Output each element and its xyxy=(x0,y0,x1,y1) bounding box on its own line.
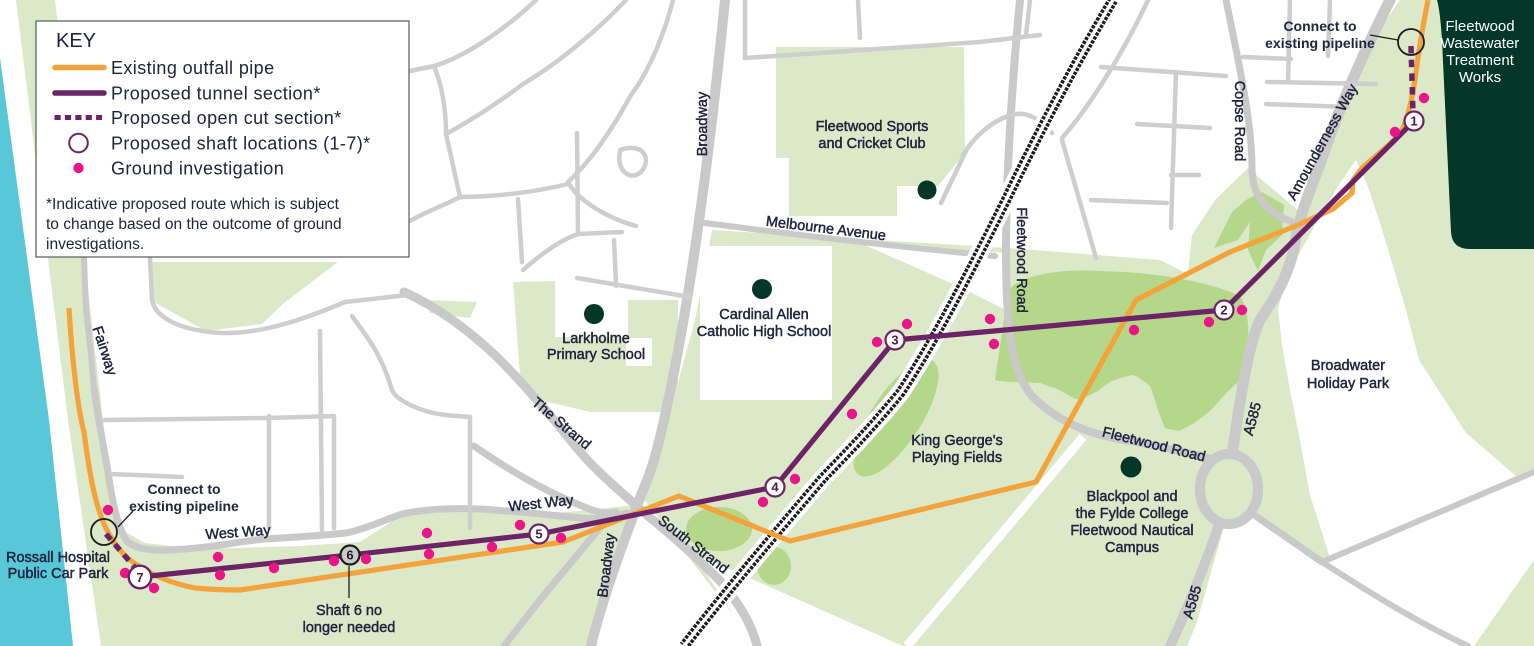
svg-text:longer needed: longer needed xyxy=(303,620,396,636)
svg-text:the Fylde College: the Fylde College xyxy=(1076,506,1189,522)
svg-text:Fleetwood Nautical: Fleetwood Nautical xyxy=(1070,523,1193,539)
svg-text:7: 7 xyxy=(136,570,143,585)
svg-text:Rossall Hospital: Rossall Hospital xyxy=(6,550,110,566)
svg-text:Public Car Park: Public Car Park xyxy=(8,566,109,582)
svg-text:Proposed tunnel section*: Proposed tunnel section* xyxy=(111,84,321,104)
svg-text:*Indicative proposed route whi: *Indicative proposed route which is subj… xyxy=(46,196,340,213)
svg-text:Connect to: Connect to xyxy=(147,481,220,497)
svg-text:3: 3 xyxy=(891,333,898,348)
svg-text:Campus: Campus xyxy=(1105,540,1159,556)
svg-text:Ground investigation: Ground investigation xyxy=(111,159,284,179)
svg-text:Cardinal Allen: Cardinal Allen xyxy=(719,307,808,323)
svg-text:existing pipeline: existing pipeline xyxy=(129,498,239,514)
svg-text:Primary School: Primary School xyxy=(547,347,645,363)
svg-text:Playing Fields: Playing Fields xyxy=(912,450,1002,466)
svg-text:Copse Road: Copse Road xyxy=(1231,81,1247,162)
svg-text:Fleetwood Road: Fleetwood Road xyxy=(1013,207,1029,313)
svg-text:2: 2 xyxy=(1220,303,1227,318)
svg-text:Shaft 6 no: Shaft 6 no xyxy=(316,603,382,619)
svg-text:and Cricket Club: and Cricket Club xyxy=(818,136,925,152)
svg-text:6: 6 xyxy=(346,548,353,563)
svg-text:Proposed open cut section*: Proposed open cut section* xyxy=(111,108,342,128)
svg-text:Catholic High School: Catholic High School xyxy=(697,324,832,340)
svg-text:Fleetwood: Fleetwood xyxy=(1445,18,1514,35)
svg-text:Proposed shaft locations (1-7): Proposed shaft locations (1-7)* xyxy=(111,134,371,154)
svg-text:Existing outfall pipe: Existing outfall pipe xyxy=(111,58,275,78)
svg-text:existing pipeline: existing pipeline xyxy=(1265,35,1375,51)
svg-text:1: 1 xyxy=(1410,114,1417,129)
svg-text:Wastewater: Wastewater xyxy=(1441,35,1520,52)
svg-text:Larkholme: Larkholme xyxy=(562,331,630,347)
svg-text:investigations.: investigations. xyxy=(46,236,144,253)
svg-text:Broadway: Broadway xyxy=(695,91,711,156)
svg-text:King George's: King George's xyxy=(911,433,1002,449)
svg-text:Connect to: Connect to xyxy=(1283,18,1356,34)
svg-text:Blackpool and: Blackpool and xyxy=(1086,489,1177,505)
svg-text:KEY: KEY xyxy=(56,30,96,52)
svg-text:Treatment: Treatment xyxy=(1446,52,1515,69)
svg-text:4: 4 xyxy=(771,480,779,495)
svg-text:Works: Works xyxy=(1459,69,1501,86)
svg-text:Fleetwood Sports: Fleetwood Sports xyxy=(816,119,929,135)
svg-text:Broadwater: Broadwater xyxy=(1311,358,1385,374)
svg-text:to change based on the outcome: to change based on the outcome of ground xyxy=(46,216,342,233)
svg-text:Holiday Park: Holiday Park xyxy=(1307,376,1390,392)
svg-text:5: 5 xyxy=(535,527,542,542)
